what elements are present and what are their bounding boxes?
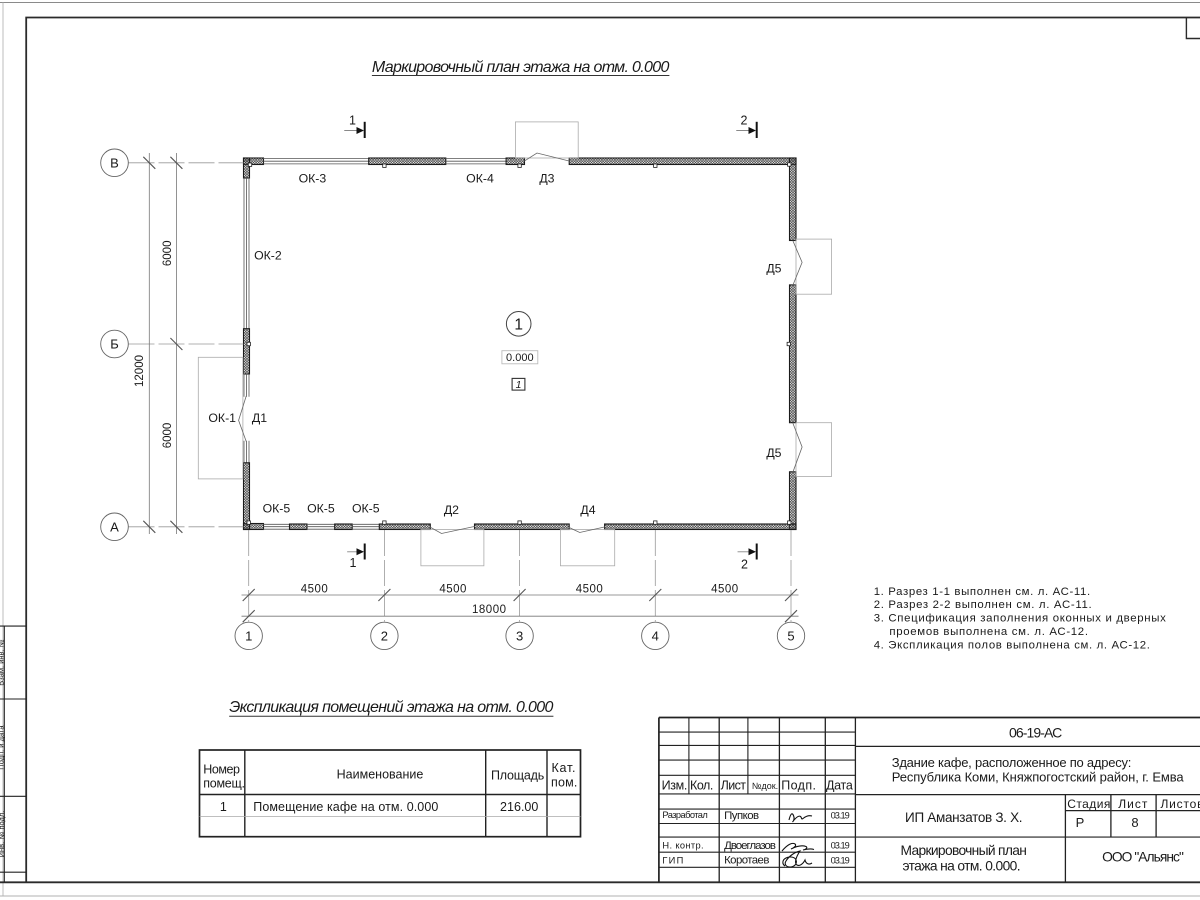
svg-text:этажа на отм. 0.000.: этажа на отм. 0.000. [902, 858, 1020, 873]
svg-text:Н. контр.: Н. контр. [662, 840, 703, 850]
svg-text:18000: 18000 [472, 604, 506, 616]
svg-text:2: 2 [741, 114, 748, 128]
svg-text:3: 3 [516, 629, 523, 644]
svg-text:Д1: Д1 [252, 411, 267, 425]
svg-text:Маркировочный план этажа на от: Маркировочный план этажа на отм. 0.000 [372, 59, 670, 76]
svg-text:1: 1 [245, 629, 252, 644]
svg-text:Подп. и дата: Подп. и дата [0, 725, 5, 770]
svg-text:ОК-5: ОК-5 [263, 501, 291, 515]
svg-text:Р: Р [1076, 815, 1085, 830]
svg-text:№док.: №док. [752, 781, 778, 791]
svg-text:1. Разрез 1-1 выполнен см. л.: 1. Разрез 1-1 выполнен см. л. АС-11. [874, 586, 1090, 598]
svg-text:Б: Б [110, 337, 119, 352]
svg-text:ОК-5: ОК-5 [307, 501, 335, 515]
svg-text:ИП Аманзатов З. Х.: ИП Аманзатов З. Х. [905, 810, 1023, 825]
svg-text:ОК-3: ОК-3 [299, 172, 327, 186]
svg-text:Кат.: Кат. [552, 761, 576, 775]
svg-text:4500: 4500 [576, 583, 603, 595]
svg-text:4. Экспликация полов выполнена: 4. Экспликация полов выполнена см. л. АС… [874, 639, 1150, 651]
svg-text:Лист: Лист [721, 779, 747, 793]
svg-text:Маркировочный план: Маркировочный план [901, 843, 1027, 858]
svg-text:12000: 12000 [134, 355, 146, 387]
svg-text:Разработал: Разработал [662, 810, 707, 820]
svg-text:3. Спецификация заполнения око: 3. Спецификация заполнения оконных и две… [874, 613, 1166, 625]
svg-text:Изм.: Изм. [662, 779, 688, 793]
svg-text:6000: 6000 [162, 423, 174, 449]
svg-text:Помещение кафе на отм. 0.000: Помещение кафе на отм. 0.000 [253, 800, 438, 814]
svg-text:Номер: Номер [203, 763, 240, 777]
svg-text:03.19: 03.19 [831, 841, 850, 851]
svg-text:Коротаев: Коротаев [724, 854, 769, 866]
svg-text:А: А [110, 520, 119, 535]
svg-text:Д3: Д3 [539, 172, 554, 186]
svg-text:5: 5 [787, 629, 794, 644]
svg-text:Инв. № подл.: Инв. № подл. [0, 811, 6, 858]
svg-text:Здание кафе, расположенное по: Здание кафе, расположенное по адресу: [892, 755, 1132, 770]
svg-text:ОК-1: ОК-1 [208, 411, 236, 425]
svg-text:8: 8 [1131, 815, 1138, 830]
svg-text:ОК-4: ОК-4 [466, 172, 494, 186]
svg-text:1: 1 [514, 316, 523, 333]
svg-text:помещ.: помещ. [203, 777, 245, 791]
svg-text:1: 1 [350, 556, 357, 570]
svg-text:ОК-2: ОК-2 [254, 249, 282, 263]
svg-text:6000: 6000 [162, 241, 174, 267]
svg-text:2: 2 [381, 629, 388, 644]
svg-text:В: В [110, 156, 119, 171]
svg-text:Листов: Листов [1161, 797, 1200, 811]
svg-text:4: 4 [652, 629, 659, 644]
svg-text:Площадь: Площадь [491, 769, 544, 783]
svg-text:Республика Коми, Княжпогостски: Республика Коми, Княжпогостский район, г… [892, 769, 1185, 784]
svg-text:Д4: Д4 [580, 503, 595, 517]
svg-text:ГИП: ГИП [662, 855, 683, 865]
svg-text:ОК-5: ОК-5 [352, 501, 380, 515]
svg-text:4500: 4500 [711, 583, 738, 595]
svg-text:Д5: Д5 [766, 446, 781, 460]
svg-text:4500: 4500 [301, 583, 328, 595]
svg-text:03.19: 03.19 [831, 811, 850, 821]
svg-text:Наименование: Наименование [337, 768, 424, 782]
svg-text:Пупков: Пупков [724, 810, 759, 822]
svg-text:ООО "Альянс": ООО "Альянс" [1102, 850, 1184, 865]
svg-text:1: 1 [349, 114, 356, 128]
svg-text:Д5: Д5 [766, 262, 781, 276]
svg-text:Экспликация помещений этажа на: Экспликация помещений этажа на отм. 0.00… [229, 699, 553, 716]
svg-text:Лист: Лист [1118, 797, 1148, 811]
svg-text:216.00: 216.00 [500, 800, 538, 814]
svg-text:Дата: Дата [826, 779, 853, 793]
svg-text:Подп.: Подп. [781, 779, 816, 793]
svg-text:0.000: 0.000 [506, 352, 534, 364]
svg-text:Д2: Д2 [444, 503, 459, 517]
svg-text:пом.: пом. [551, 776, 577, 790]
svg-text:2. Разрез 2-2 выполнен см. л.: 2. Разрез 2-2 выполнен см. л. АС-11. [874, 599, 1092, 611]
svg-text:проемов выполнена см. л. АС-12: проемов выполнена см. л. АС-12. [889, 626, 1088, 638]
svg-text:Стадия: Стадия [1067, 797, 1110, 811]
svg-text:1: 1 [220, 800, 227, 814]
svg-text:2: 2 [741, 558, 748, 572]
svg-text:1: 1 [516, 379, 522, 391]
svg-text:4500: 4500 [439, 583, 466, 595]
svg-text:Взам. инв. №: Взам. инв. № [0, 639, 6, 685]
svg-text:03.19: 03.19 [831, 855, 850, 865]
svg-text:Двоеглазов: Двоеглазов [724, 840, 776, 852]
svg-text:Кол.: Кол. [690, 779, 713, 793]
svg-text:06-19-АС: 06-19-АС [1009, 725, 1062, 741]
